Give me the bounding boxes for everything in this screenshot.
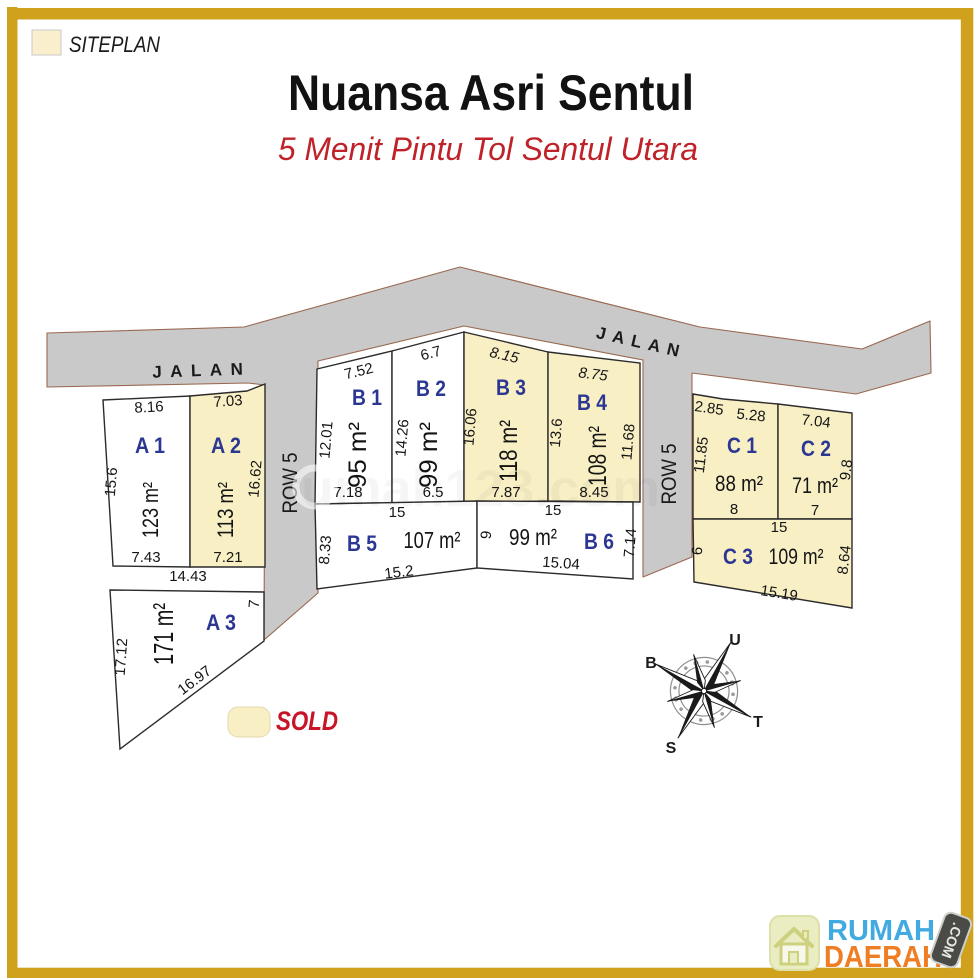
svg-text:7: 7 [811,502,819,519]
svg-text:7.21: 7.21 [213,549,242,566]
svg-text:88 m²: 88 m² [715,471,763,496]
svg-text:9.8: 9.8 [837,459,856,482]
svg-text:B 4: B 4 [577,390,608,415]
svg-text:8.16: 8.16 [134,398,164,417]
svg-text:7.43: 7.43 [131,549,160,566]
svg-text:5 Menit Pintu Tol Sentul Utara: 5 Menit Pintu Tol Sentul Utara [278,131,698,167]
svg-text:B 1: B 1 [352,385,382,410]
svg-text:15.04: 15.04 [542,554,581,574]
svg-text:C 3: C 3 [723,544,753,569]
svg-text:SOLD: SOLD [276,706,338,736]
svg-text:71 m²: 71 m² [792,473,838,498]
svg-text:ROW 5: ROW 5 [658,444,681,505]
svg-text:123 m²: 123 m² [138,482,163,538]
svg-text:113 m²: 113 m² [213,482,238,538]
svg-text:DAERAH: DAERAH [824,939,942,974]
svg-text:5.28: 5.28 [736,406,767,426]
svg-text:8.64: 8.64 [834,544,854,575]
svg-text:7.04: 7.04 [801,411,832,431]
svg-text:C 1: C 1 [727,433,757,458]
svg-text:15.6: 15.6 [102,467,121,498]
svg-text:171 m²: 171 m² [148,603,179,665]
svg-text:SITEPLAN: SITEPLAN [69,32,160,57]
svg-text:7.14: 7.14 [621,528,640,559]
svg-text:U: U [729,632,741,649]
svg-text:A 3: A 3 [206,610,236,635]
svg-text:T: T [753,714,763,731]
svg-text:99 m²: 99 m² [509,524,557,550]
svg-text:8: 8 [730,501,738,518]
svg-text:rumah123.com: rumah123.com [280,460,660,518]
svg-text:C 2: C 2 [801,436,831,461]
svg-text:14.43: 14.43 [169,568,207,585]
svg-text:B 5: B 5 [347,531,377,556]
svg-text:11.68: 11.68 [618,423,638,461]
svg-text:8.75: 8.75 [578,364,610,385]
svg-text:9: 9 [478,530,496,540]
svg-text:109 m²: 109 m² [769,544,824,569]
svg-text:107 m²: 107 m² [404,527,461,553]
svg-text:A 2: A 2 [211,433,241,458]
svg-text:A 1: A 1 [135,433,165,458]
svg-text:B: B [645,655,657,672]
svg-text:S: S [666,740,677,757]
svg-text:12.01: 12.01 [316,421,336,460]
svg-text:7: 7 [246,599,264,609]
svg-text:17.12: 17.12 [112,638,132,677]
svg-text:16.62: 16.62 [245,460,265,499]
svg-text:8.33: 8.33 [316,535,335,566]
svg-text:15: 15 [771,519,788,536]
svg-text:13.6: 13.6 [547,418,566,449]
svg-text:14.26: 14.26 [392,419,412,458]
svg-text:JALAN: JALAN [152,359,252,381]
svg-text:7.03: 7.03 [213,392,243,411]
svg-text:Nuansa Asri Sentul: Nuansa Asri Sentul [288,65,694,121]
svg-text:B 2: B 2 [416,376,446,401]
svg-text:B 6: B 6 [584,529,614,554]
svg-text:15.2: 15.2 [383,562,414,582]
svg-text:16.06: 16.06 [460,408,480,447]
svg-text:B 3: B 3 [496,375,526,400]
